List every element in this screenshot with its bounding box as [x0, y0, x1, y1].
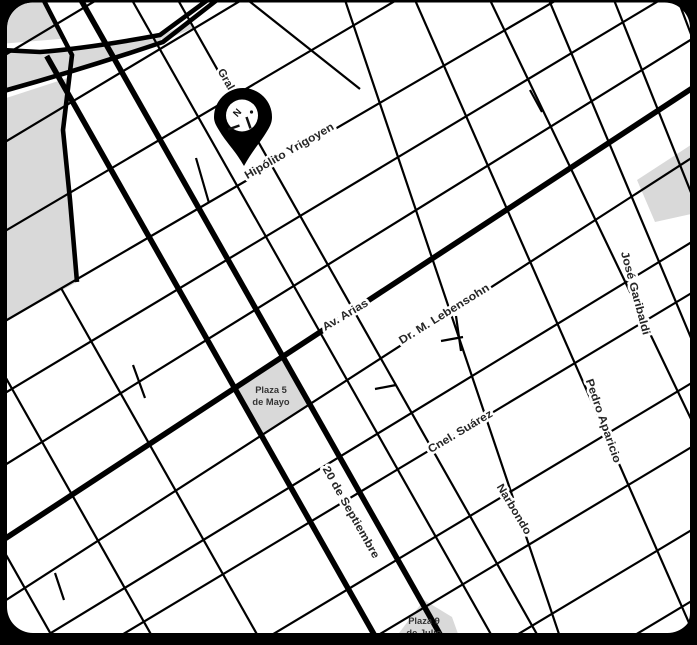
svg-text:Plaza 5: Plaza 5 [255, 385, 287, 395]
svg-text:Plaza 9: Plaza 9 [408, 616, 440, 626]
svg-text:de Mayo: de Mayo [252, 397, 290, 407]
